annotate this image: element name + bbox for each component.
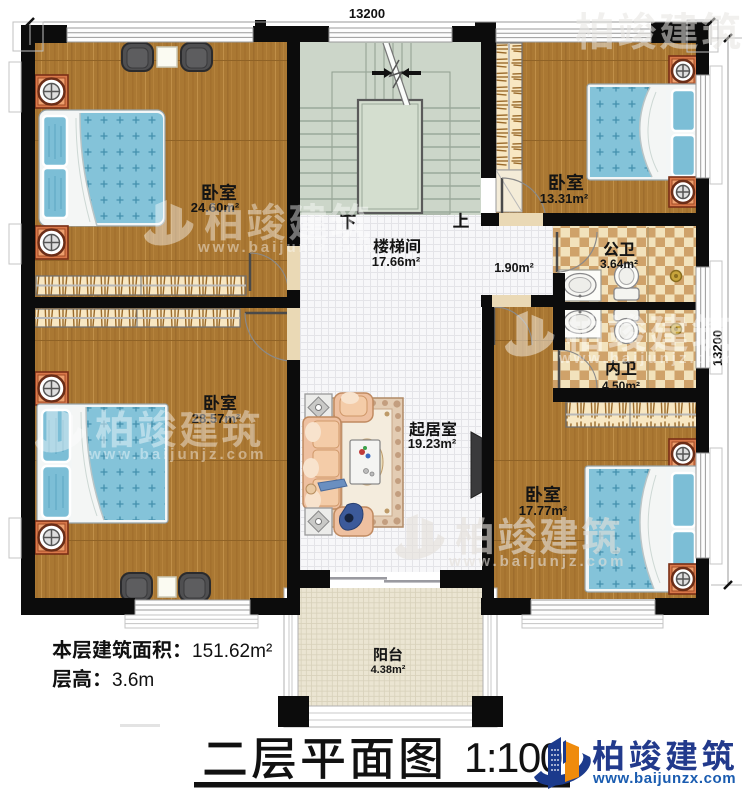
svg-text:3.64m²: 3.64m² [600, 257, 638, 271]
svg-text:1.90m²: 1.90m² [494, 261, 534, 275]
svg-text:13.31m²: 13.31m² [540, 191, 589, 206]
svg-text:13200: 13200 [349, 6, 385, 21]
svg-text:17.77m²: 17.77m² [519, 503, 568, 518]
svg-text:4.38m²: 4.38m² [371, 664, 406, 676]
svg-text:4.50m²: 4.50m² [602, 379, 640, 393]
svg-text:19.23m²: 19.23m² [408, 436, 457, 451]
svg-text:3.6m: 3.6m [112, 670, 154, 691]
svg-text:17.66m²: 17.66m² [372, 254, 421, 269]
svg-text:1:100: 1:100 [464, 734, 562, 781]
svg-text:151.62m²: 151.62m² [192, 641, 272, 662]
svg-text:www.baijunzx.com: www.baijunzx.com [592, 770, 736, 787]
